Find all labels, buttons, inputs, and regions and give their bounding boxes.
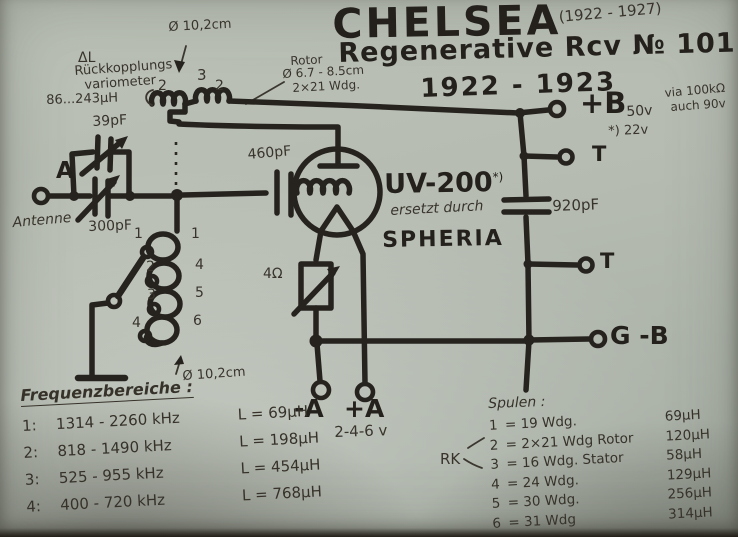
filament-lead-left [316,231,321,260]
t1-terminal-circle [560,151,573,164]
g-minus-b-terminal-circle [591,332,605,346]
coil-diameter-arrowhead [174,355,184,365]
coil-inductance: 58μH [666,445,703,466]
grid-cap-plates [277,172,291,215]
spheria-label: SPHERIA [382,226,504,253]
coil-number: 1 [489,416,506,436]
rk-label: RK [440,450,460,468]
coil-winding-table: Spulen : 1 = 19 Wdg. 69μH 2 = 2×21 Wdg R… [488,388,713,532]
filament-voltage-label: 2-4-6 v [334,421,388,441]
variometer-inductance-range: 86...243μH [46,90,118,107]
tube-name: UV-200 [384,167,493,200]
g-minus-b-label: G -B [610,321,669,350]
tube-filament [321,207,353,231]
range-inductance: L = 198μH [239,424,320,455]
tap-number-3: 3 [147,287,156,303]
bypass-cap-plates [504,199,549,212]
plus-b-terminal-circle [550,102,564,116]
cap39-label: 39pF [92,112,128,130]
section-number-6: 6 [193,313,202,329]
range-inductance: L = 768μH [241,478,322,509]
plus-a-label: +A [344,394,384,423]
coil-number: 4 [491,475,508,495]
t2-terminal-circle [580,259,593,272]
range-inductance: L = 454μH [240,451,321,482]
t2-wire [528,264,577,265]
coil-inductance: 314μH [668,503,713,525]
section-number-1: 1 [191,226,200,242]
g-minus-b-wire [529,339,589,340]
variometer-link [185,101,196,104]
plus-b-alt-voltage-label: *) 22v [608,123,648,139]
variometer-coil-number-right: 2 [215,78,224,94]
range-number: 3: [24,465,59,494]
tap-number-2: 2 [146,259,155,275]
tube-grid [297,181,350,193]
diameter-arrowhead [174,60,185,73]
section-number-5: 5 [195,285,204,301]
rk-brace [464,438,484,468]
variometer-coil-number-left: 2 [158,78,167,94]
cap300-label: 300pF [88,217,132,235]
coil-number: 2 [489,436,506,456]
coil-inductance: 69μH [664,406,701,427]
plus-b-voltage-label: 50v [626,103,653,120]
range-number: 4: [26,492,61,521]
coil-number: 3 [490,455,507,475]
variometer-coil-left [152,93,186,104]
coil-inductance: 129μH [666,464,711,486]
hand-drawn-schematic-photo: CHELSEA (1922 - 1927) Regenerative Rcv №… [0,0,738,537]
coil-inductance: 256μH [667,483,712,505]
variometer-step [170,104,185,122]
grid-cap-wire [183,193,266,195]
filament-lead-right [353,231,365,383]
section-number-4: 4 [195,257,204,273]
plate-supply-wire [229,101,548,113]
antenna-terminal-label: A [56,158,74,184]
plus-b-label: +B [580,86,626,120]
bypass-cap-label: 920pF [552,195,599,215]
variometer-coil-number-mid: 3 [197,66,207,84]
range-number: 1: [21,411,56,440]
t2-label: T [600,249,614,273]
tap-number-4: 4 [132,315,141,331]
range-number: 2: [23,438,58,467]
junction-dot [125,191,135,201]
coil-number: 5 [491,494,508,514]
cap39-arrow [82,141,122,174]
t1-label: T [592,142,606,166]
antenna-terminal-circle [34,189,48,203]
tube-name-label: UV-200*) [384,167,504,200]
frequency-range-table: Frequenzbereiche : 1: 1314 - 2260 kHz L … [20,371,323,521]
coil-number: 6 [492,514,509,534]
minus-a-wire [317,344,320,381]
switch-arm [118,258,143,296]
rheostat-label: 4Ω [263,266,283,282]
range-inductance: L = 69μH [237,398,309,429]
tap-number-1: 1 [134,226,143,242]
tube-footnote-mark: *) [492,170,503,184]
switch-wire [92,303,108,375]
variometer-coil-right [195,90,229,101]
t1-wire [524,156,557,157]
coil-inductance: 120μH [665,425,710,447]
cap39-branch-right [113,152,129,194]
